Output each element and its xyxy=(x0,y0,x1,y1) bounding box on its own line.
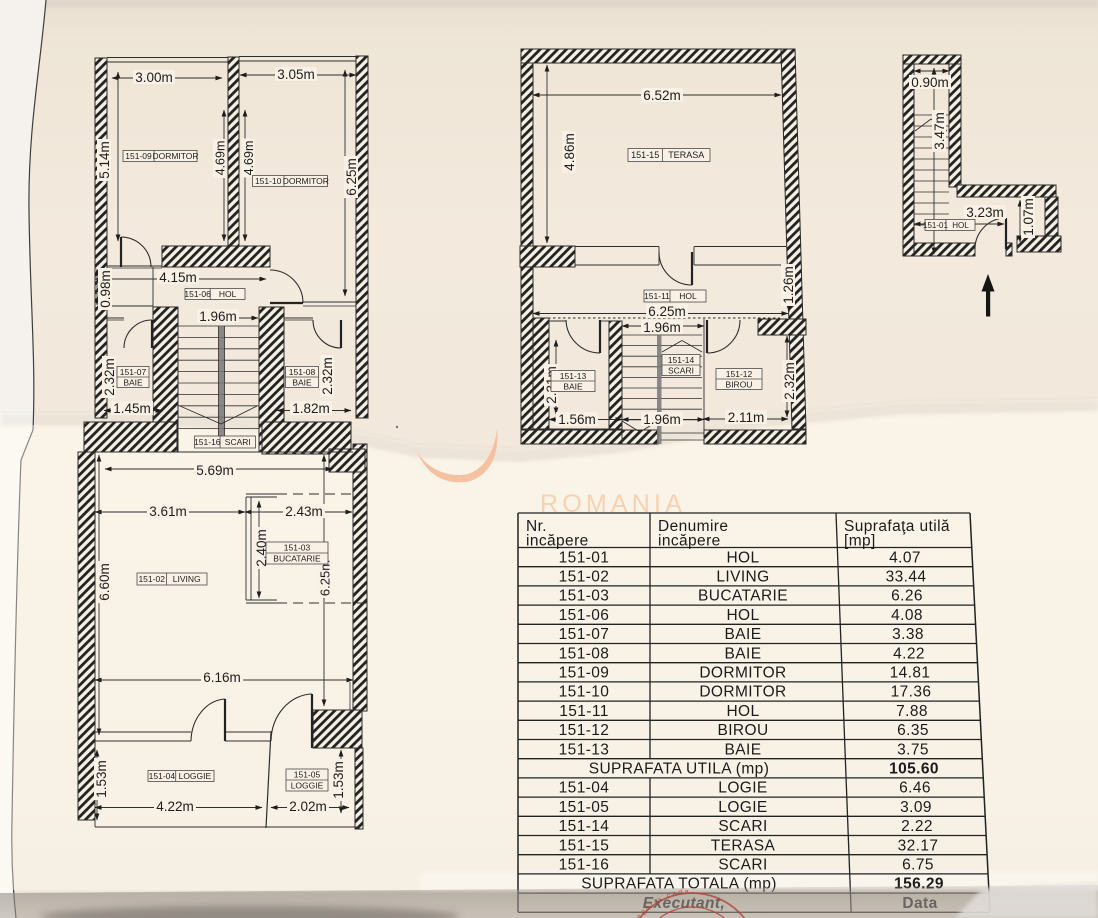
svg-text:BAIE: BAIE xyxy=(292,377,312,387)
svg-text:DORMITOR: DORMITOR xyxy=(283,176,329,186)
svg-text:HOL: HOL xyxy=(726,607,759,624)
svg-text:1.45m: 1.45m xyxy=(113,401,151,416)
svg-text:7.88: 7.88 xyxy=(896,703,928,720)
svg-text:151-01: 151-01 xyxy=(559,549,610,566)
svg-text:151-15: 151-15 xyxy=(559,837,610,854)
svg-text:151-10: 151-10 xyxy=(255,176,282,186)
svg-text:2.22: 2.22 xyxy=(901,818,933,835)
svg-text:6.25m: 6.25m xyxy=(648,304,686,319)
svg-text:2.43m: 2.43m xyxy=(285,504,323,519)
svg-text:DORMITOR: DORMITOR xyxy=(699,665,786,682)
svg-text:SCARI: SCARI xyxy=(718,857,767,874)
svg-text:3.23m: 3.23m xyxy=(966,205,1004,220)
svg-text:151-04: 151-04 xyxy=(559,780,610,797)
svg-text:1.82m: 1.82m xyxy=(292,401,330,416)
svg-text:4.22: 4.22 xyxy=(893,645,925,662)
svg-text:DORMITOR: DORMITOR xyxy=(699,684,786,701)
svg-text:5.14m: 5.14m xyxy=(97,141,112,179)
svg-text:151-14: 151-14 xyxy=(668,355,695,365)
svg-text:BUCATARIE: BUCATARIE xyxy=(698,588,788,605)
svg-text:DORMITOR: DORMITOR xyxy=(152,151,198,161)
svg-text:151-13: 151-13 xyxy=(559,741,610,758)
svg-text:LOGGIE: LOGGIE xyxy=(291,781,324,791)
svg-text:BAIE: BAIE xyxy=(123,377,143,387)
svg-text:151-16: 151-16 xyxy=(194,437,221,447)
svg-text:3.00m: 3.00m xyxy=(135,70,173,85)
svg-text:151-09: 151-09 xyxy=(125,151,152,161)
svg-text:151-07: 151-07 xyxy=(120,367,147,377)
svg-text:LOGIE: LOGIE xyxy=(718,780,767,797)
svg-text:6.16m: 6.16m xyxy=(203,670,241,685)
svg-text:3.09: 3.09 xyxy=(900,799,932,816)
svg-text:105.60: 105.60 xyxy=(889,761,939,778)
svg-text:TERASA: TERASA xyxy=(668,150,704,160)
svg-text:TERASA: TERASA xyxy=(711,837,776,854)
svg-text:151-09: 151-09 xyxy=(559,665,610,682)
svg-text:3.05m: 3.05m xyxy=(277,67,315,82)
svg-text:151-13: 151-13 xyxy=(560,371,587,381)
svg-text:6.75: 6.75 xyxy=(902,857,934,874)
svg-text:3.47m: 3.47m xyxy=(932,112,947,150)
svg-text:BAIE: BAIE xyxy=(725,626,762,643)
svg-text:151-01: 151-01 xyxy=(923,221,948,230)
svg-text:151-06: 151-06 xyxy=(559,607,610,624)
svg-text:3.38: 3.38 xyxy=(892,626,924,643)
svg-text:4.22m: 4.22m xyxy=(156,799,194,814)
svg-text:HOL: HOL xyxy=(726,703,759,720)
svg-text:2.32m: 2.32m xyxy=(782,362,797,400)
svg-text:incăpere: incăpere xyxy=(526,533,589,550)
svg-text:1.07m: 1.07m xyxy=(1021,198,1036,236)
svg-text:0.98m: 0.98m xyxy=(98,270,113,308)
svg-text:151-12: 151-12 xyxy=(726,369,753,379)
svg-text:151-06: 151-06 xyxy=(184,289,211,299)
svg-text:6.46: 6.46 xyxy=(899,780,931,797)
svg-text:1.53m: 1.53m xyxy=(331,761,346,799)
svg-text:5.69m: 5.69m xyxy=(196,463,234,478)
svg-text:151-11: 151-11 xyxy=(644,291,670,301)
svg-text:151-04: 151-04 xyxy=(149,771,176,781)
svg-text:151-12: 151-12 xyxy=(559,722,610,739)
svg-text:SCARI: SCARI xyxy=(225,437,251,447)
svg-text:4.69m: 4.69m xyxy=(242,141,256,176)
svg-text:4.86m: 4.86m xyxy=(562,133,577,171)
svg-text:2.02m: 2.02m xyxy=(289,799,327,814)
svg-text:BAIE: BAIE xyxy=(725,741,762,758)
svg-text:151-11: 151-11 xyxy=(559,703,609,720)
svg-text:HOL: HOL xyxy=(219,289,237,299)
svg-text:151-07: 151-07 xyxy=(559,626,610,643)
svg-text:SCARI: SCARI xyxy=(718,818,767,835)
svg-text:BIROU: BIROU xyxy=(726,379,753,389)
svg-text:17.36: 17.36 xyxy=(891,684,932,701)
svg-text:2.11m: 2.11m xyxy=(728,410,765,425)
svg-text:HOL: HOL xyxy=(952,221,969,230)
svg-text:BAIE: BAIE xyxy=(563,381,583,391)
svg-text:BIROU: BIROU xyxy=(717,722,768,739)
svg-text:6.25m: 6.25m xyxy=(344,158,359,196)
svg-text:14.81: 14.81 xyxy=(890,665,931,682)
svg-text:151-16: 151-16 xyxy=(559,857,610,874)
svg-text:1.96m: 1.96m xyxy=(643,320,681,335)
svg-text:6.52m: 6.52m xyxy=(643,88,681,103)
svg-text:LOGIE: LOGIE xyxy=(718,799,767,816)
svg-text:6.60m: 6.60m xyxy=(97,563,112,601)
svg-text:SCARI: SCARI xyxy=(668,365,694,375)
svg-text:3.61m: 3.61m xyxy=(149,504,187,519)
svg-text:2.32m: 2.32m xyxy=(320,357,335,395)
svg-text:151-10: 151-10 xyxy=(559,684,610,701)
svg-text:4.08: 4.08 xyxy=(891,607,923,624)
svg-text:32.17: 32.17 xyxy=(898,837,939,854)
svg-text:3.75: 3.75 xyxy=(897,741,929,758)
svg-text:1.96m: 1.96m xyxy=(199,309,237,324)
svg-text:1.26m: 1.26m xyxy=(781,266,796,304)
svg-text:ROMANIA: ROMANIA xyxy=(540,490,686,518)
svg-text:151-03: 151-03 xyxy=(559,588,610,605)
svg-text:6.35: 6.35 xyxy=(897,722,929,739)
svg-text:151-08: 151-08 xyxy=(289,367,316,377)
svg-text:151-14: 151-14 xyxy=(559,818,610,835)
svg-text:1.96m: 1.96m xyxy=(643,412,681,427)
svg-text:151-02: 151-02 xyxy=(138,574,165,584)
svg-text:151-05: 151-05 xyxy=(559,799,610,816)
svg-text:151-03: 151-03 xyxy=(284,543,311,553)
svg-text:LIVING: LIVING xyxy=(173,574,201,584)
svg-text:6.25m: 6.25m xyxy=(318,560,333,596)
svg-text:SUPRAFATA UTILA (mp): SUPRAFATA UTILA (mp) xyxy=(589,761,770,778)
svg-text:151-02: 151-02 xyxy=(559,569,610,586)
svg-text:6.26: 6.26 xyxy=(891,588,923,605)
svg-text:BAIE: BAIE xyxy=(725,645,762,662)
svg-text:33.44: 33.44 xyxy=(886,569,927,586)
svg-text:HOL: HOL xyxy=(679,291,697,301)
svg-text:LOGGIE: LOGGIE xyxy=(179,771,212,781)
svg-text:incăpere: incăpere xyxy=(658,533,721,550)
svg-text:0.90m: 0.90m xyxy=(911,75,949,90)
svg-text:4.15m: 4.15m xyxy=(159,270,197,285)
svg-text:151-05: 151-05 xyxy=(294,770,321,780)
svg-text:2.32m: 2.32m xyxy=(102,358,117,396)
svg-text:4.07: 4.07 xyxy=(889,549,921,566)
svg-text:1.56m: 1.56m xyxy=(558,412,596,427)
svg-text:1.53m: 1.53m xyxy=(94,760,109,798)
svg-text:[mp]: [mp] xyxy=(844,533,876,550)
svg-text:151-15: 151-15 xyxy=(631,150,659,160)
svg-text:BUCATARIE: BUCATARIE xyxy=(273,554,321,564)
svg-text:LIVING: LIVING xyxy=(716,569,769,586)
svg-text:151-08: 151-08 xyxy=(559,645,610,662)
svg-text:4.69m: 4.69m xyxy=(214,141,228,176)
svg-text:HOL: HOL xyxy=(726,549,759,566)
